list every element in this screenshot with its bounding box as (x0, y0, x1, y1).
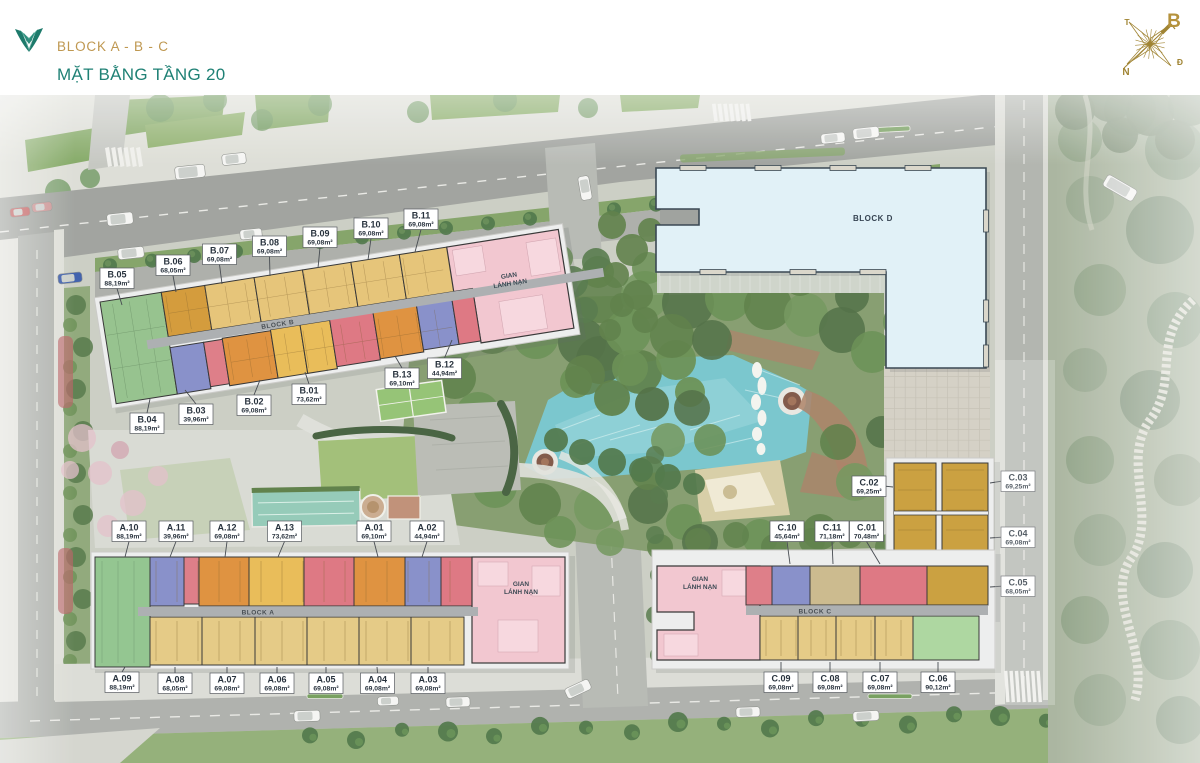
svg-text:BLOCK A - B - C: BLOCK A - B - C (57, 39, 169, 54)
svg-text:T: T (1124, 17, 1130, 27)
svg-text:MẶT BẰNG TẦNG 20: MẶT BẰNG TẦNG 20 (57, 65, 226, 84)
svg-text:B: B (1167, 11, 1181, 32)
svg-text:N: N (1122, 67, 1129, 78)
svg-text:Đ: Đ (1177, 57, 1183, 67)
